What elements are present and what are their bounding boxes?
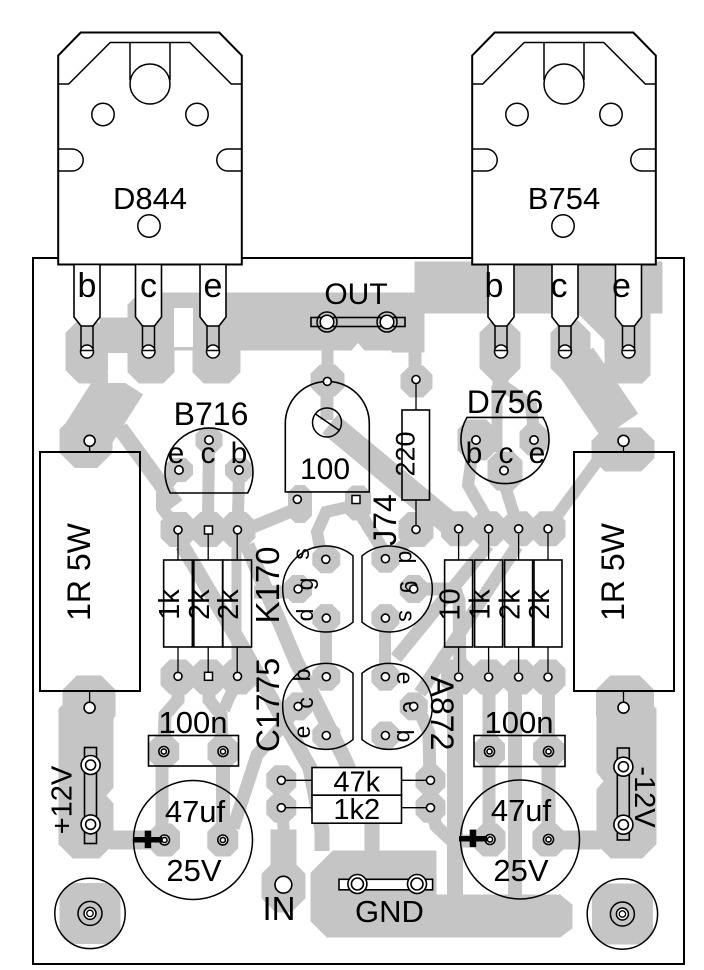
svg-text:D844: D844 [113,181,187,216]
svg-text:25V: 25V [493,853,548,888]
svg-text:b: b [289,669,315,682]
svg-text:100: 100 [300,453,350,486]
svg-text:d: d [394,551,420,564]
svg-text:c: c [551,267,568,305]
svg-text:b: b [392,730,418,743]
svg-text:b: b [78,267,97,305]
svg-text:s: s [288,548,314,560]
svg-text:2k: 2k [213,589,245,620]
svg-text:e: e [168,437,185,470]
svg-text:K170: K170 [249,546,286,623]
svg-text:1k2: 1k2 [333,794,380,826]
svg-text:GND: GND [355,894,424,929]
svg-text:D756: D756 [467,384,544,420]
svg-text:-12V: -12V [628,766,660,828]
svg-text:e: e [289,726,315,739]
svg-text:47uf: 47uf [491,793,552,828]
svg-text:OUT: OUT [324,278,387,311]
svg-text:e: e [612,267,631,305]
svg-text:B716: B716 [174,396,249,432]
svg-text:1R 5W: 1R 5W [595,522,631,621]
svg-text:IN: IN [263,890,296,927]
svg-text:J74: J74 [367,494,403,546]
svg-text:s: s [394,610,420,622]
svg-text:e: e [204,267,223,305]
svg-text:100n: 100n [159,705,228,740]
svg-text:c: c [499,437,514,470]
svg-text:B754: B754 [528,181,600,216]
svg-text:2k: 2k [495,589,527,620]
svg-text:1k: 1k [465,589,497,620]
svg-text:c: c [140,267,157,305]
svg-text:1k: 1k [154,589,186,620]
svg-text:10: 10 [435,588,467,620]
svg-text:1R 5W: 1R 5W [61,522,97,621]
svg-text:A872: A872 [424,676,460,751]
svg-text:100n: 100n [485,705,554,740]
svg-text:C1775: C1775 [250,658,286,752]
svg-text:e: e [392,672,418,685]
svg-text:25V: 25V [166,853,221,888]
svg-text:b: b [485,267,504,305]
svg-text:+12V: +12V [47,765,79,834]
svg-text:2k: 2k [184,589,216,620]
svg-text:2k: 2k [524,589,556,620]
svg-text:220: 220 [391,431,421,476]
svg-text:d: d [292,609,318,622]
svg-text:47uf: 47uf [165,794,226,829]
